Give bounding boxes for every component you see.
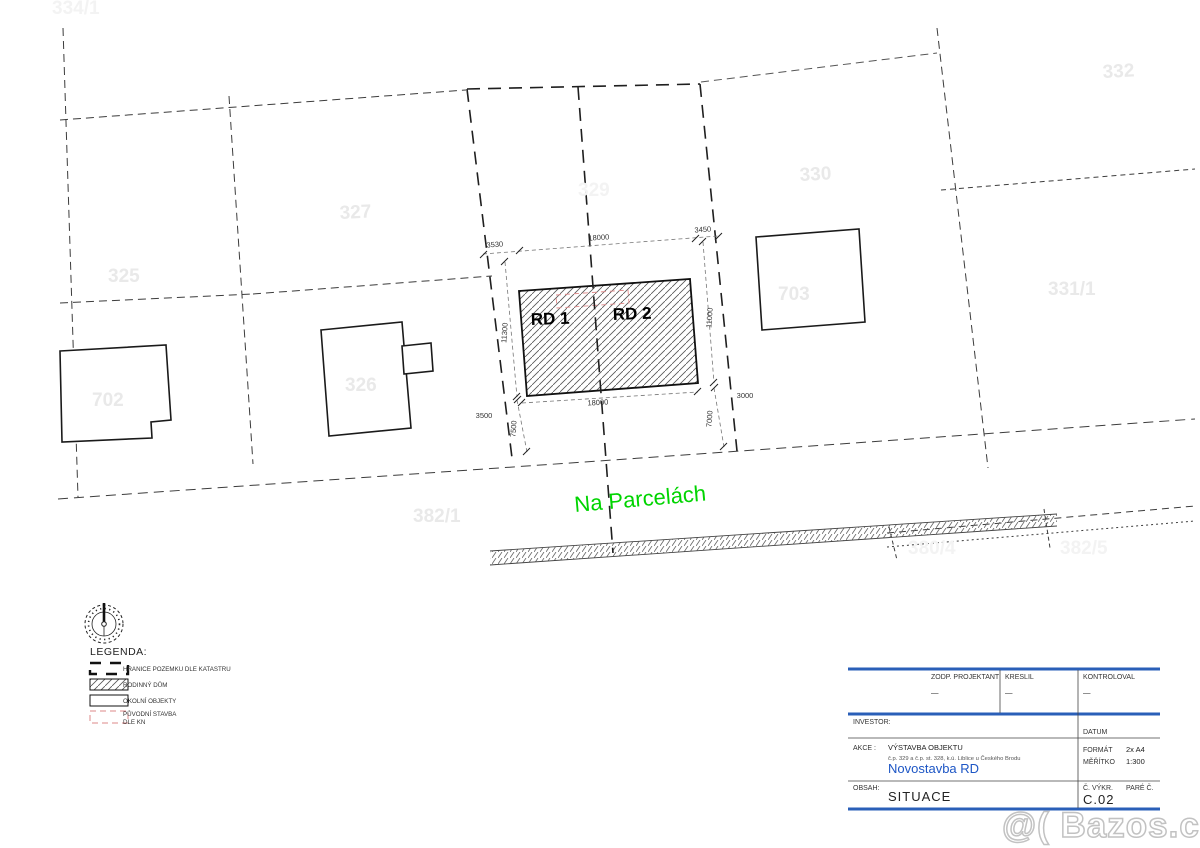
dim-bottom-width: 18000 — [587, 397, 608, 407]
street-name: Na Parcelách — [573, 481, 707, 517]
tb-kreslil: KRESLIL — [1005, 674, 1034, 681]
parcel-334-1: 334/1 — [52, 0, 100, 19]
parcel-703: 703 — [778, 284, 810, 305]
parcel-325: 325 — [108, 266, 140, 287]
tb-obsah-label: OBSAH: — [853, 785, 880, 792]
tb-project-name: Novostavba RD — [888, 761, 979, 776]
parcel-702: 702 — [92, 390, 124, 411]
site-plan-drawing: 3530 18000 3450 11300 11000 18000 3500 7… — [0, 0, 1200, 848]
legend-item-boundary: HRANICE POZEMKU DLE KATASTRU — [123, 666, 231, 673]
parcel-labels: 334/1 332 330 327 325 329 326 702 703 33… — [52, 0, 1135, 559]
watermark: @( Bazos.cz — [1002, 806, 1200, 845]
tb-pare-label: PARÉ Č. — [1126, 783, 1154, 792]
tb-meritko-value: 1:300 — [1126, 757, 1145, 766]
tb-format-label: FORMÁT — [1083, 745, 1113, 754]
legend: LEGENDA: HRANICE POZEMKU DLE KATASTRU RO… — [90, 646, 231, 726]
rd1-label: RD 1 — [530, 309, 569, 329]
tb-dash1: — — [931, 688, 939, 697]
dim-left-offset: 3500 — [476, 411, 493, 420]
rd2-label: RD 2 — [612, 304, 651, 324]
tb-format-value: 2x A4 — [1126, 745, 1145, 754]
dim-right-height: 11000 — [704, 307, 714, 328]
dim-left-height: 11300 — [499, 322, 509, 343]
tb-akce-value: VÝSTAVBA OBJEKTU — [888, 743, 963, 752]
parcel-380-4: 380/4 — [908, 538, 956, 559]
tb-investor: INVESTOR: — [853, 719, 891, 726]
legend-item-surrounding: OKOLNÍ OBJEKTY — [123, 698, 176, 705]
tb-cvykr-value: C.02 — [1083, 792, 1114, 807]
parcel-382-1: 382/1 — [413, 506, 461, 527]
legend-item-house: RODINNÝ DŮM — [123, 682, 167, 689]
building-703 — [756, 229, 865, 330]
legend-title: LEGENDA: — [90, 646, 147, 658]
tb-datum: DATUM — [1083, 729, 1108, 736]
dim-top-right: 3450 — [694, 224, 711, 234]
parcel-382-5: 382/5 — [1060, 538, 1108, 559]
title-block: ZODP. PROJEKTANT KRESLIL KONTROLOVAL — —… — [848, 669, 1160, 809]
dim-right-front: 7000 — [704, 410, 714, 427]
parcel-327: 327 — [339, 201, 372, 224]
tb-meritko-label: MĚŘÍTKO — [1083, 757, 1115, 766]
tb-akce: AKCE : — [853, 745, 876, 752]
tb-cvykr-label: Č. VÝKR. — [1083, 783, 1113, 792]
parcel-326: 326 — [345, 375, 377, 396]
new-house — [519, 279, 698, 396]
tb-kontroloval: KONTROLOVAL — [1083, 674, 1135, 681]
dim-top-mid: 18000 — [588, 232, 609, 242]
north-compass-icon — [85, 603, 123, 643]
legend-item-original-line2: DLE KN — [123, 719, 145, 726]
tb-zodp-projektant: ZODP. PROJEKTANT — [931, 674, 1000, 681]
dim-left-front: 7500 — [508, 420, 518, 437]
tb-dash2: — — [1005, 688, 1013, 697]
parcel-331-1: 331/1 — [1048, 279, 1096, 300]
dim-top-left: 3530 — [486, 239, 503, 249]
legend-item-original-line1: PŮVODNÍ STAVBA — [123, 711, 177, 718]
tb-dash3: — — [1083, 688, 1091, 697]
dim-right-offset: 3000 — [737, 391, 754, 400]
parcel-332: 332 — [1102, 60, 1135, 83]
building-326-annex — [402, 343, 433, 374]
drawing-svg: 3530 18000 3450 11300 11000 18000 3500 7… — [0, 0, 1200, 848]
tb-obsah-value: SITUACE — [888, 789, 951, 804]
parcel-329: 329 — [578, 180, 610, 201]
neighbour-buildings — [60, 229, 865, 442]
parcel-330: 330 — [799, 163, 832, 186]
